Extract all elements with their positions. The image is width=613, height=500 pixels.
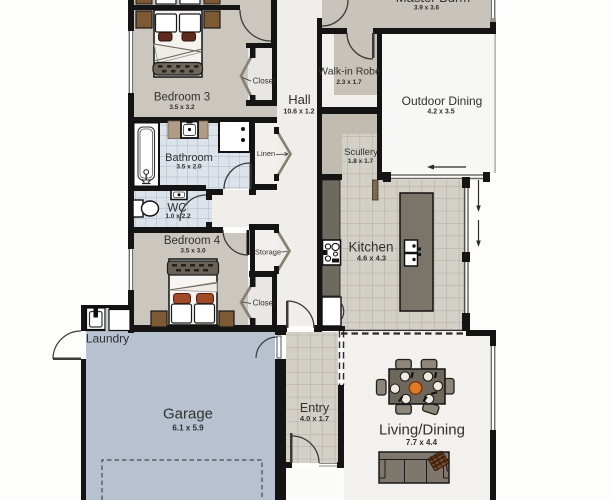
svg-text:4.6 x 4.3: 4.6 x 4.3 bbox=[357, 254, 386, 263]
svg-text:Living/Dining: Living/Dining bbox=[379, 422, 465, 439]
svg-text:Bedroom 4: Bedroom 4 bbox=[164, 235, 221, 247]
svg-text:3.5 x 2.0: 3.5 x 2.0 bbox=[176, 164, 202, 171]
svg-text:7.7 x 4.4: 7.7 x 4.4 bbox=[406, 438, 438, 447]
svg-text:Hall: Hall bbox=[288, 92, 311, 107]
svg-text:2.3 x 1.7: 2.3 x 1.7 bbox=[336, 79, 362, 86]
svg-text:3.5 x 3.0: 3.5 x 3.0 bbox=[180, 248, 206, 255]
svg-text:Kitchen: Kitchen bbox=[348, 240, 393, 255]
svg-text:1.8 x 1.7: 1.8 x 1.7 bbox=[348, 158, 374, 165]
svg-text:3.5 x 3.2: 3.5 x 3.2 bbox=[169, 104, 195, 111]
svg-text:Outdoor Dining: Outdoor Dining bbox=[402, 94, 483, 108]
svg-text:Laundry: Laundry bbox=[86, 332, 129, 346]
svg-text:Scullery: Scullery bbox=[344, 147, 378, 158]
svg-text:Bedroom 3: Bedroom 3 bbox=[154, 92, 210, 104]
svg-text:Bathroom: Bathroom bbox=[165, 152, 213, 164]
svg-text:4.2 x 3.5: 4.2 x 3.5 bbox=[427, 109, 454, 116]
svg-text:Garage: Garage bbox=[163, 406, 213, 423]
svg-text:Linen: Linen bbox=[257, 149, 275, 158]
svg-text:1.0 x 2.2: 1.0 x 2.2 bbox=[165, 213, 191, 220]
svg-text:6.1 x 5.9: 6.1 x 5.9 bbox=[172, 424, 204, 433]
svg-text:Walk-in Robe: Walk-in Robe bbox=[318, 66, 381, 78]
svg-text:10.6 x 1.2: 10.6 x 1.2 bbox=[283, 109, 314, 116]
svg-text:Entry: Entry bbox=[300, 401, 330, 415]
svg-text:Closet: Closet bbox=[253, 299, 276, 308]
svg-text:3.9 x 3.6: 3.9 x 3.6 bbox=[414, 5, 440, 12]
svg-text:Closet: Closet bbox=[253, 77, 276, 86]
svg-text:4.0 x 1.7: 4.0 x 1.7 bbox=[300, 414, 329, 423]
svg-text:Storage: Storage bbox=[255, 248, 281, 257]
